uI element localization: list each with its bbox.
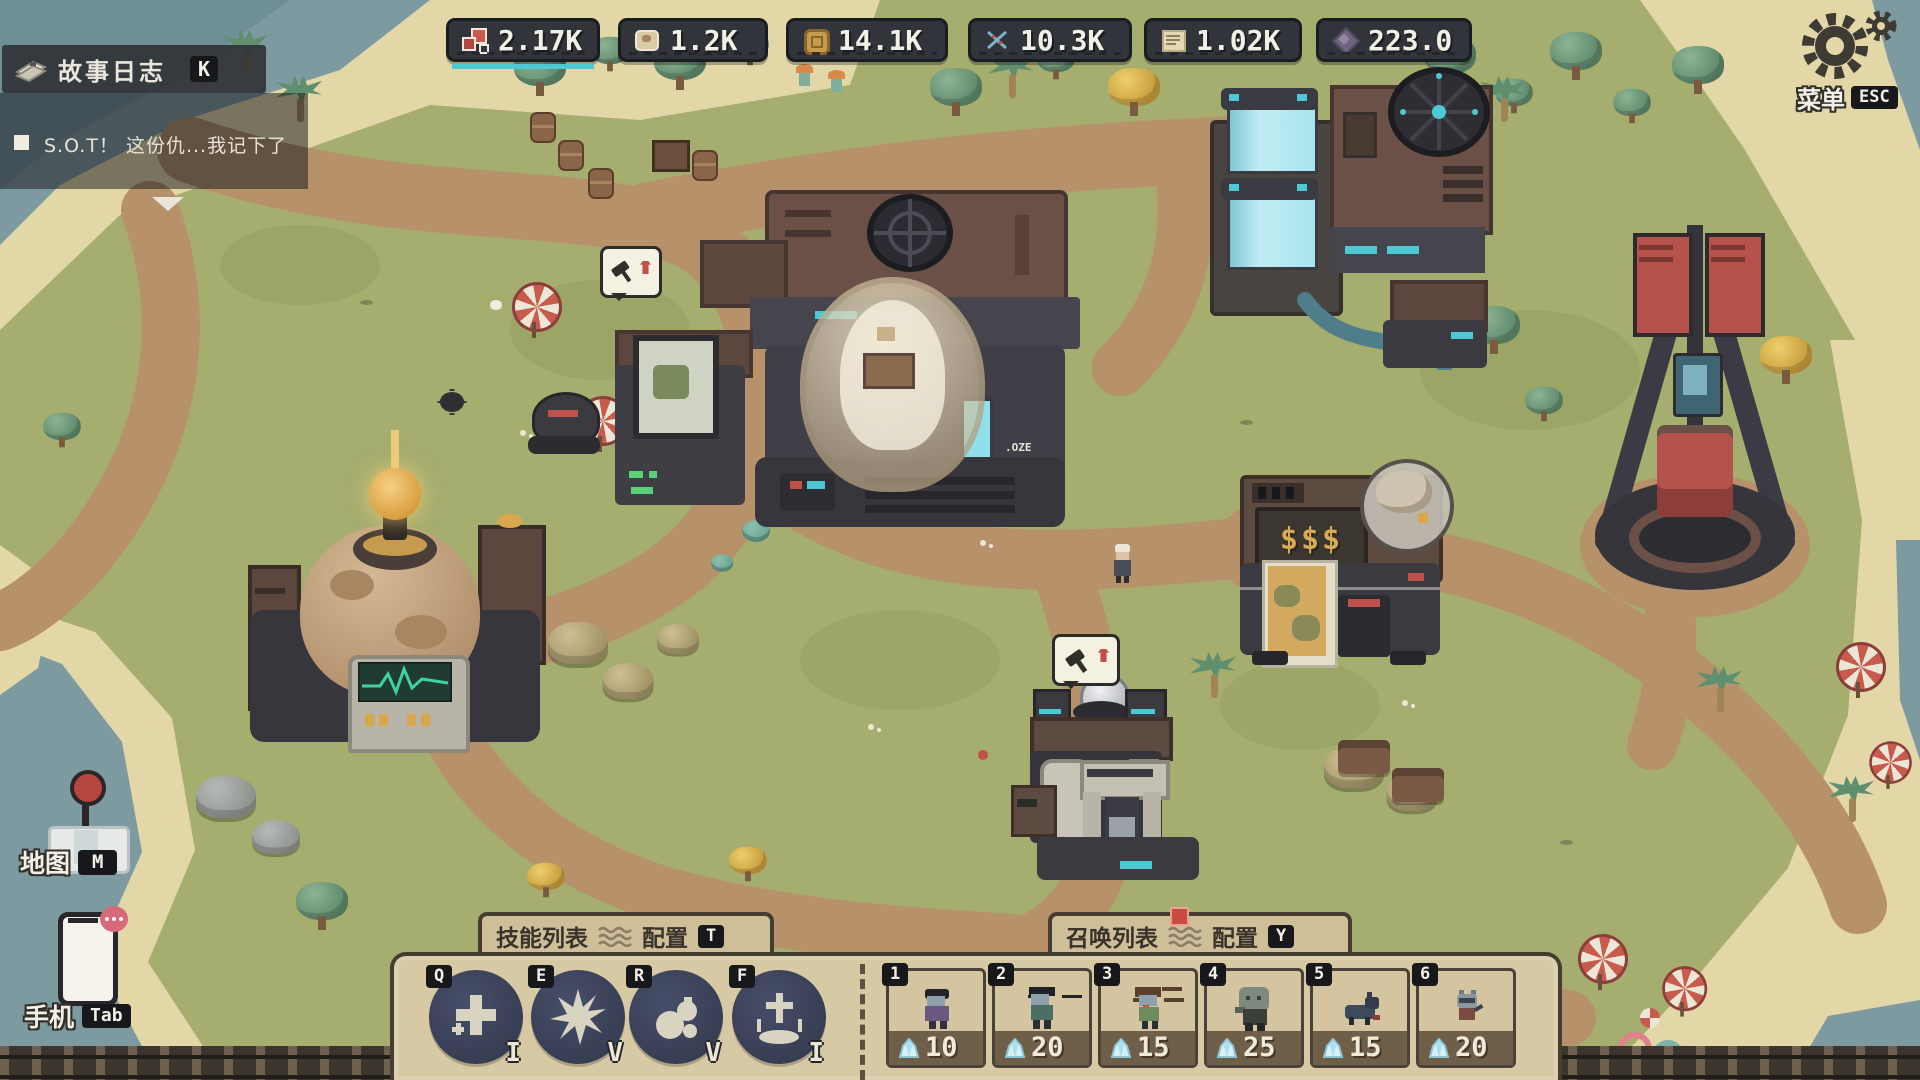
summon-notification-dot [1170,907,1189,926]
summon-list-header[interactable]: 召唤列表 配置 Y [1048,912,1352,956]
resource-hide[interactable]: 1.2K [618,18,768,62]
story-log-title: 故事日志 [58,52,166,87]
log-expand-arrow[interactable] [152,197,184,227]
beach-umbrella [512,282,556,326]
resource-dna[interactable]: 10.3K [968,18,1132,62]
mech-in-case [653,365,689,399]
zombie-spiky-sprite [1129,987,1169,1031]
hammer-icon [1062,645,1094,673]
npc-character [1112,544,1134,584]
summon-config-label: 配置 [1212,919,1258,953]
selected-resource-underline [452,64,594,69]
crystal-cost-icon [1322,1038,1344,1058]
phone-label: 手机 [24,998,74,1034]
log-entry-bullet [14,135,29,150]
yellow-tree [729,847,766,882]
crate [652,140,690,172]
flower [868,724,874,730]
wave-divider-icon [1168,925,1202,947]
brain-dome-building[interactable] [245,430,545,745]
barrel [558,140,584,171]
spiky-drone [440,392,464,412]
gem-icon [1332,27,1358,53]
red-bird [978,750,988,760]
summon-slot-1[interactable]: 1 10 [886,968,986,1068]
couch [1338,740,1390,774]
palm-tree [1828,776,1874,822]
antenna-tower-building[interactable] [1595,225,1795,593]
rock [603,663,654,699]
hull-label: .OZE [1005,441,1032,454]
pilot-character [873,313,899,327]
forge-speech-bubble[interactable] [1052,634,1120,686]
crystal-cost-icon [1004,1038,1026,1058]
skill-list-header[interactable]: 技能列表 配置 T [478,912,774,956]
skill-config-label: 配置 [642,919,688,953]
beach-umbrella [1578,934,1622,978]
summon-slot-2[interactable]: 2 20 [992,968,1092,1068]
phone-button[interactable]: 手机 Tab [24,910,174,1030]
palm-tree [1696,666,1742,712]
craft-speech-bubble[interactable] [600,246,662,298]
barrel [530,112,556,143]
totem-skill-icon [751,989,807,1045]
dna-icon [984,27,1010,53]
menu-key-hint: ESC [1851,86,1898,109]
yellow-tree [1108,68,1160,116]
map-button[interactable]: 地图 M [18,740,178,882]
skill-config-key: T [698,925,724,948]
white-critter [490,300,502,310]
resource-blueprints[interactable]: 1.02K [1144,18,1302,62]
action-bar: 技能列表 配置 T 召唤列表 配置 Y Q [390,912,1562,1080]
skill-slot-q[interactable]: Q I [429,970,523,1064]
red-blocks-icon [462,27,488,53]
crystal-cost-icon [898,1038,920,1058]
notification-bubble [100,906,128,932]
zombie-purple-sprite [917,987,957,1031]
tree [43,413,80,448]
summon-slot-3[interactable]: 3 15 [1098,968,1198,1068]
beach-umbrella [1662,966,1702,1006]
story-log-entries: S.O.T！ 这份仇...我记下了 [0,93,308,189]
golden-orb [369,468,421,520]
tree [1672,46,1724,94]
beach-umbrella [1869,741,1906,778]
cross-skill-icon [448,989,504,1045]
crystal-cost-icon [1216,1038,1238,1058]
skill-list-title: 技能列表 [496,919,588,953]
barrel [692,150,718,181]
game-viewport: .OZE [0,0,1920,1080]
skill-slot-r[interactable]: R V [629,970,723,1064]
summon-slot-4[interactable]: 4 25 [1204,968,1304,1068]
beach-creature [828,70,846,94]
tree [930,68,982,116]
cat-sprite [1447,987,1487,1031]
rock [657,624,699,653]
resource-scrap[interactable]: 2.17K [446,18,600,62]
bomb-skill-icon [648,989,704,1045]
tree [296,882,348,930]
ecg-screen [358,662,452,702]
crystal-cost-icon [1428,1038,1450,1058]
burst-skill-icon [550,989,606,1045]
couch [1392,768,1444,802]
menu-button[interactable]: 菜单 ESC [1795,6,1920,108]
resource-coins[interactable]: 14.1K [786,18,948,62]
summon-slot-6[interactable]: 6 20 [1416,968,1516,1068]
workshop-building[interactable] [1025,665,1210,880]
map-key-hint: M [78,850,117,875]
shop-building[interactable]: $$$ [1240,465,1445,665]
zombie-big-sprite [1235,987,1275,1031]
roof-porthole [865,193,955,273]
story-log-header[interactable]: 故事日志 K [2,45,266,93]
chemical-plant-building[interactable] [1205,70,1495,370]
coin-icon [802,27,828,53]
beach-umbrella [1836,642,1880,686]
gear-icon [1799,6,1909,84]
upgrade-icon [640,261,651,274]
grass-tuft [1240,420,1253,425]
log-entry-text: S.O.T！ 这份仇...我记下了 [44,131,287,158]
crystal-cost-icon [1110,1038,1132,1058]
beach-creature [796,64,814,88]
hide-icon [634,27,660,53]
scroll-icon [1160,27,1186,53]
skill-slot-f[interactable]: F I [732,970,826,1064]
rock [252,820,300,854]
tree [1550,32,1602,80]
menu-label: 菜单 [1797,80,1845,115]
armor-icon [1098,649,1109,662]
bush [711,554,733,572]
shop-sign: $$$ [1280,522,1343,557]
barrel [588,168,614,199]
book-icon [12,54,48,84]
grass-tuft [360,300,373,305]
flower [980,540,986,546]
rock [196,776,256,818]
command-center-building[interactable]: .OZE [615,185,1115,530]
flower [1402,700,1408,706]
story-log-key-hint: K [190,56,218,82]
resource-gems[interactable]: 223.0 [1316,18,1472,62]
phone-key-hint: Tab [82,1004,131,1028]
zombie-green-sprite [1023,987,1063,1031]
summon-slot-5[interactable]: 5 15 [1310,968,1410,1068]
rock [548,622,608,664]
hound-sprite [1341,987,1381,1031]
tree [1525,387,1562,422]
hammer-icon [609,257,639,283]
yellow-tree [527,863,564,898]
grass-tuft [1560,840,1573,845]
summon-config-key: Y [1268,925,1294,948]
action-bar-panel: Q I E V R V F [390,952,1562,1080]
skill-slot-e[interactable]: E V [531,970,625,1064]
beach-ball [1640,1008,1660,1028]
tree [1613,89,1650,124]
wave-divider-icon [598,925,632,947]
roof-fan [1387,66,1491,158]
map-label: 地图 [20,844,70,880]
summon-list-title: 召唤列表 [1066,919,1158,953]
section-divider [860,964,865,1080]
